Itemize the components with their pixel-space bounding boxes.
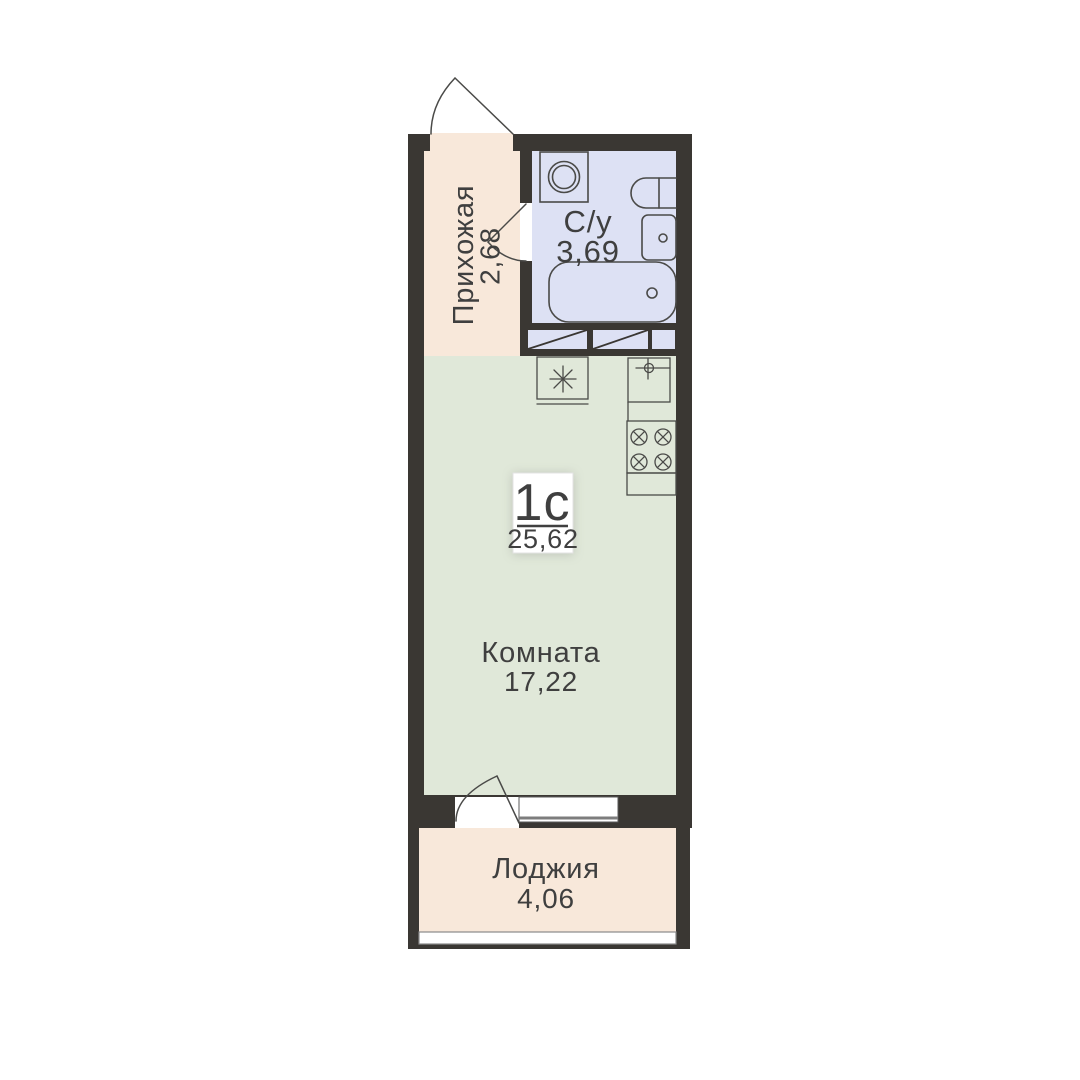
shaft-box-3 (652, 330, 675, 349)
wall-room-bottom-left (408, 795, 455, 828)
loggia-area: 4,06 (517, 883, 575, 914)
wall-hall-bath-upper (520, 151, 532, 203)
wall-room-bottom-right (618, 795, 692, 828)
loggia-glazing (419, 932, 676, 944)
room-name: Комната (481, 637, 600, 669)
wall-loggia-bottom-edge (408, 944, 690, 949)
entrance-door-arc (431, 78, 455, 134)
wall-top-right-segment (513, 134, 692, 151)
entrance-door-leaf (455, 78, 513, 134)
wall-loggia-right (676, 828, 690, 949)
entrance-opening-rebate (424, 143, 518, 152)
wall-insets (528, 330, 675, 349)
wall-loggia-left (408, 828, 419, 949)
wall-right (676, 134, 692, 828)
bathroom-area: 3,69 (556, 234, 620, 269)
loggia-name: Лоджия (492, 853, 600, 885)
floor-plan: 1с 25,62 Прихожая 2,68 С/у 3,69 Комната … (0, 0, 1080, 1080)
room-floor (424, 356, 676, 795)
wall-left (408, 134, 424, 828)
type-label-box: 1с 25,62 (507, 473, 579, 554)
room-area: 17,22 (504, 666, 578, 697)
total-area-value: 25,62 (507, 524, 579, 554)
wall-under-window (519, 822, 618, 828)
hallway-area: 2,68 (475, 227, 506, 285)
fridge-asterisk-icon (550, 366, 576, 392)
